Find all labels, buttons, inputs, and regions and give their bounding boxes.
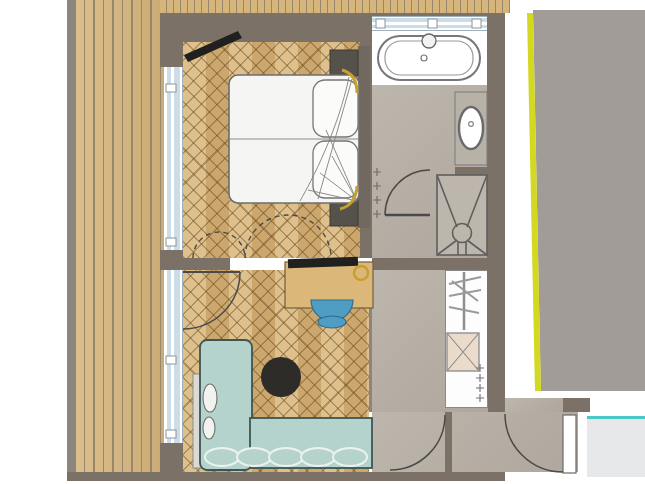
wall-left-top bbox=[160, 13, 183, 67]
wall-bottom bbox=[67, 472, 505, 481]
living-floor bbox=[183, 270, 369, 472]
bathtub-platform bbox=[372, 31, 487, 85]
outside-area bbox=[533, 10, 645, 391]
wall-divider-left bbox=[163, 258, 230, 270]
desk-tv bbox=[288, 257, 358, 268]
wall-vestibule-stub bbox=[445, 412, 452, 472]
entry-landing bbox=[587, 419, 645, 477]
floor-plan bbox=[0, 0, 645, 484]
wall-divider-right bbox=[372, 258, 505, 270]
wall-right bbox=[487, 13, 505, 398]
wall-shower-stub bbox=[455, 167, 487, 179]
terrace-edge bbox=[67, 0, 76, 472]
wall-entry-right bbox=[563, 398, 590, 412]
living-corridor-edge bbox=[369, 268, 372, 412]
wall-entry-left bbox=[488, 398, 505, 412]
entry-threshold bbox=[587, 416, 645, 419]
entry-doorway-floor bbox=[505, 398, 563, 412]
wall-top bbox=[160, 13, 372, 42]
facade-wood-band bbox=[160, 0, 510, 13]
terrace-glazing-living bbox=[163, 270, 183, 443]
terrace-deck bbox=[76, 0, 163, 472]
vestibule-floor bbox=[372, 412, 578, 472]
terrace-glazing-bedroom bbox=[163, 67, 183, 250]
bedroom-floor bbox=[183, 42, 360, 258]
wardrobe bbox=[445, 270, 488, 408]
wall-bedroom-bathroom bbox=[360, 42, 372, 258]
bathroom-window bbox=[372, 16, 487, 31]
